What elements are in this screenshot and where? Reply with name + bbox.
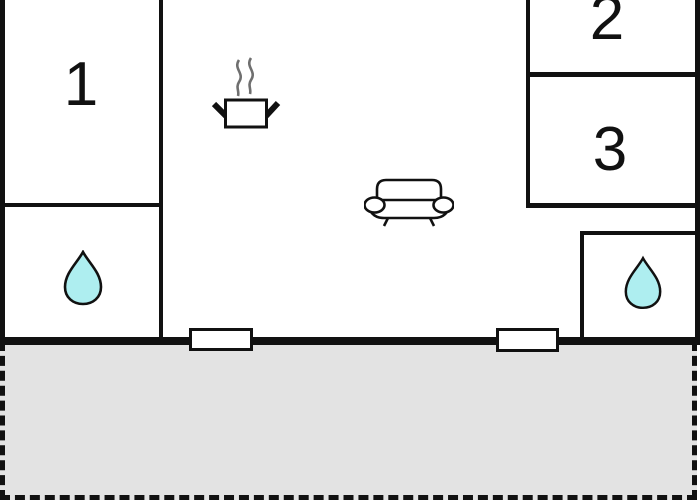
- water-drop-left-icon: [61, 250, 105, 306]
- room-3-label: 3: [570, 119, 650, 181]
- floor-plan: 1 2 3: [0, 0, 700, 500]
- room-1-label: 1: [41, 54, 121, 116]
- pot-body: [226, 100, 267, 127]
- sofa-armrest-left: [365, 198, 385, 213]
- steam-line-2: [249, 58, 252, 94]
- wall-outer-left: [0, 0, 5, 345]
- wall-interior-left-vertical: [159, 0, 163, 341]
- wall-interior-right-vertical: [526, 0, 530, 207]
- wall-room3-bottom: [526, 203, 700, 208]
- terrace-area: [0, 341, 697, 500]
- wall-room2-room3: [526, 72, 700, 77]
- sofa-armrest-right: [434, 198, 454, 213]
- door-window-right: [496, 328, 559, 352]
- wall-bathroom-right-top: [580, 231, 695, 235]
- cooking-pot-icon: [208, 55, 284, 133]
- wall-bathroom-right-left: [580, 231, 584, 337]
- kitchen-living-area: [163, 0, 526, 337]
- door-window-left: [189, 328, 253, 351]
- room-2-label: 2: [567, 0, 647, 50]
- wall-room1-bathroom: [0, 203, 163, 207]
- water-drop-shape: [626, 258, 660, 308]
- water-drop-right-icon: [622, 254, 664, 312]
- water-drop-shape: [65, 252, 101, 304]
- wall-outer-bottom: [0, 337, 700, 345]
- sofa-icon: [364, 176, 454, 228]
- wall-outer-right: [695, 0, 700, 345]
- steam-line-1: [237, 60, 240, 96]
